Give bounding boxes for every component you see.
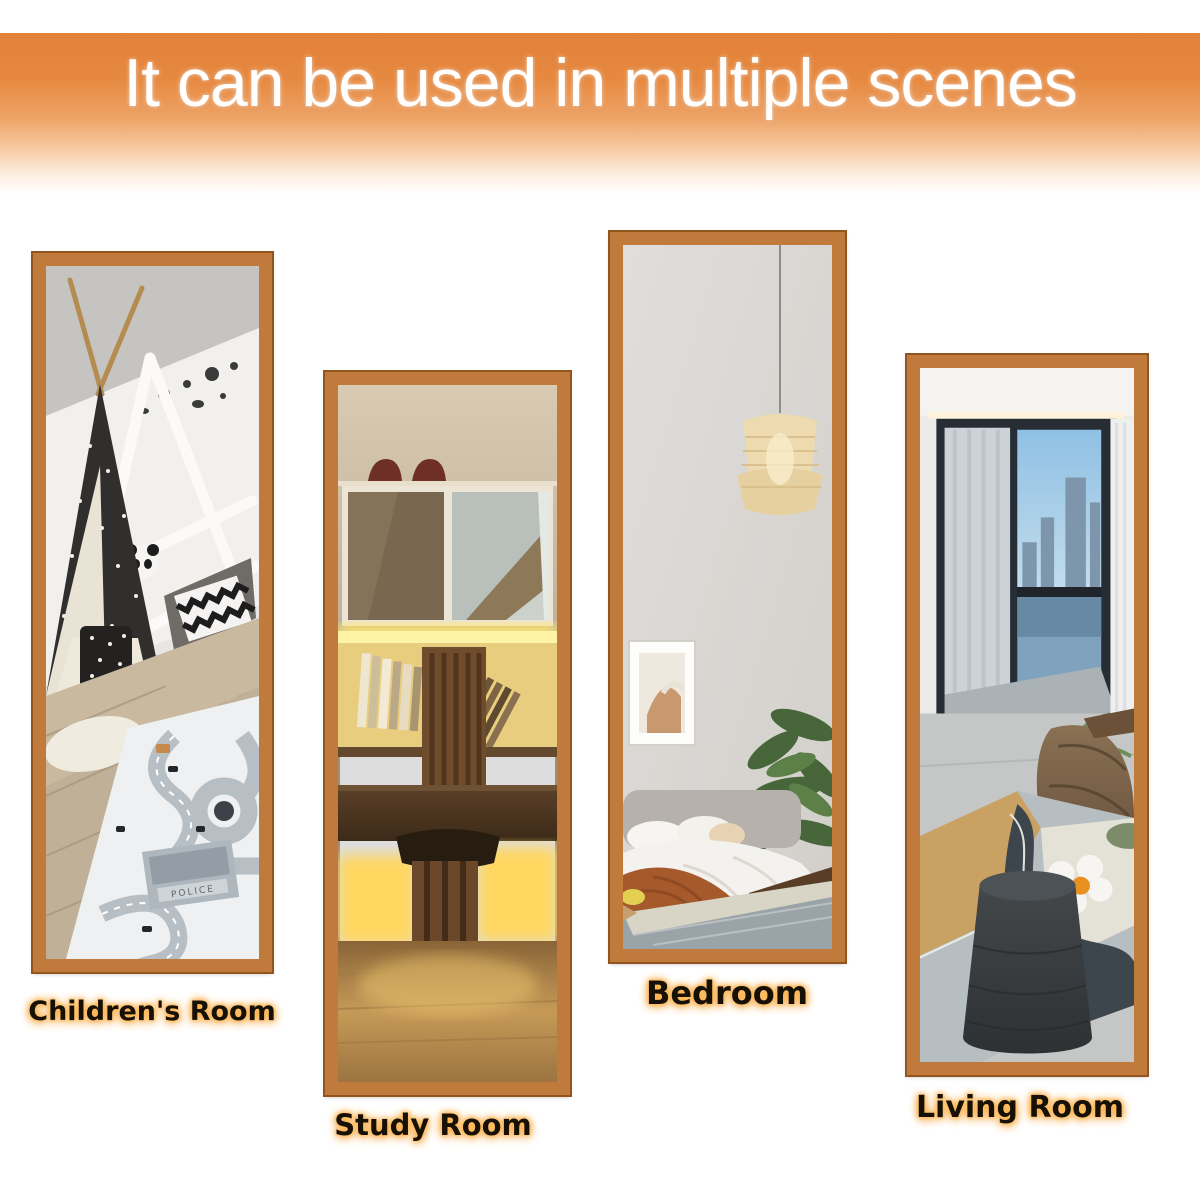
product-scene-collage: It can be used in multiple scenes bbox=[0, 0, 1200, 1200]
children-room-photo: POLICE bbox=[46, 266, 259, 959]
mirror-living-room bbox=[907, 355, 1147, 1075]
page-title: It can be used in multiple scenes bbox=[0, 44, 1200, 122]
caption-children-room: Children's Room bbox=[28, 996, 275, 1027]
caption-bedroom: Bedroom bbox=[646, 974, 808, 1012]
mirror-study-room bbox=[325, 372, 570, 1095]
study-room-photo bbox=[338, 385, 557, 1082]
mirror-children-room: POLICE bbox=[33, 253, 272, 972]
caption-living-room: Living Room bbox=[916, 1090, 1124, 1125]
caption-study-room: Study Room bbox=[334, 1108, 532, 1142]
mirror-bedroom bbox=[610, 232, 845, 962]
bedroom-photo bbox=[623, 245, 832, 949]
living-room-photo bbox=[920, 368, 1134, 1062]
